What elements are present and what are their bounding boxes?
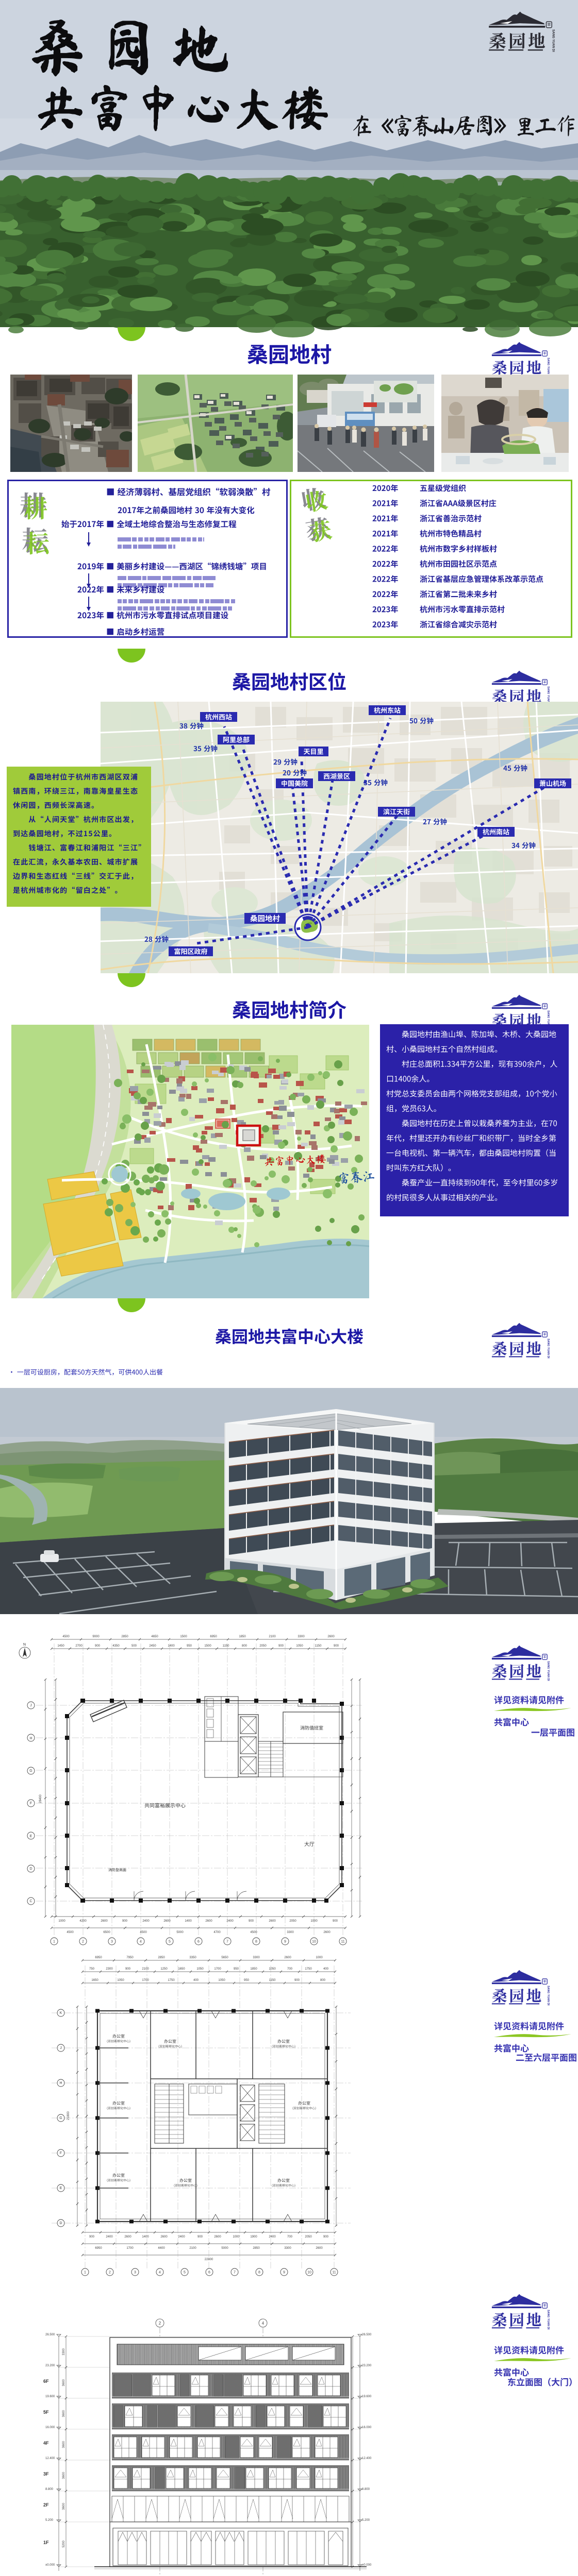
- svg-text:900: 900: [89, 2235, 95, 2239]
- svg-text:7950: 7950: [126, 1956, 134, 1959]
- svg-text:800: 800: [242, 1645, 247, 1648]
- svg-text:3600: 3600: [62, 2441, 65, 2448]
- svg-text:D: D: [59, 2222, 62, 2225]
- svg-text:500: 500: [131, 1645, 137, 1648]
- svg-text:11: 11: [332, 2271, 336, 2275]
- svg-text:1400: 1400: [142, 2235, 149, 2239]
- svg-text:2600: 2600: [269, 1920, 276, 1923]
- svg-text:10: 10: [307, 2271, 311, 2275]
- svg-text:1000: 1000: [316, 1956, 323, 1959]
- svg-text:2700: 2700: [75, 1645, 82, 1648]
- svg-text:2100: 2100: [142, 1968, 149, 1971]
- svg-text:N: N: [23, 1643, 26, 1647]
- svg-text:4500: 4500: [250, 1931, 257, 1934]
- svg-text:16.000: 16.000: [362, 2426, 372, 2429]
- svg-text:3300: 3300: [284, 2247, 291, 2250]
- svg-text:8: 8: [258, 2271, 260, 2275]
- svg-text:23.200: 23.200: [362, 2364, 372, 2367]
- svg-text:3600: 3600: [62, 2503, 65, 2510]
- svg-text:1050: 1050: [269, 1968, 276, 1971]
- svg-text:2400: 2400: [106, 2235, 113, 2239]
- svg-text:D: D: [29, 1867, 32, 1871]
- svg-text:19.600: 19.600: [45, 2395, 55, 2398]
- svg-text:3: 3: [134, 2271, 136, 2275]
- svg-text:H: H: [29, 1737, 32, 1740]
- svg-text:6: 6: [197, 1940, 200, 1944]
- svg-text:2400: 2400: [269, 2235, 276, 2239]
- svg-text:K: K: [60, 2011, 62, 2015]
- svg-text:4500: 4500: [67, 1931, 74, 1934]
- svg-text:1700: 1700: [126, 2247, 134, 2250]
- svg-text:950: 950: [187, 1645, 192, 1648]
- svg-text:6950: 6950: [210, 1635, 217, 1638]
- svg-text:J: J: [60, 2046, 62, 2050]
- svg-text:2300: 2300: [106, 1968, 113, 1971]
- svg-text:16.000: 16.000: [45, 2426, 55, 2429]
- svg-text:E: E: [60, 2187, 62, 2190]
- svg-text:2050: 2050: [305, 2235, 312, 2239]
- svg-text:2400: 2400: [226, 1920, 234, 1923]
- svg-text:400: 400: [323, 1968, 329, 1971]
- svg-text:2: 2: [82, 1940, 84, 1944]
- svg-text:4200: 4200: [79, 1920, 87, 1923]
- svg-text:5200: 5200: [62, 2540, 65, 2548]
- svg-text:5F: 5F: [43, 2410, 49, 2415]
- svg-text:5: 5: [169, 1940, 171, 1944]
- svg-text:950: 950: [244, 1979, 250, 1982]
- svg-text:1400: 1400: [168, 1645, 175, 1648]
- svg-text:3350: 3350: [189, 1956, 196, 1959]
- svg-text:2600: 2600: [327, 1635, 335, 1638]
- svg-text:3F: 3F: [43, 2471, 49, 2477]
- svg-text:5.200: 5.200: [45, 2519, 54, 2522]
- svg-text:±0.000: ±0.000: [45, 2564, 55, 2567]
- svg-text:F: F: [30, 1802, 32, 1805]
- svg-text:7: 7: [234, 2271, 236, 2275]
- svg-text:1150: 1150: [315, 1645, 322, 1648]
- svg-text:2600: 2600: [214, 2235, 221, 2239]
- svg-text:4700: 4700: [213, 1931, 221, 1934]
- svg-text:4: 4: [159, 2271, 161, 2275]
- svg-text:1700: 1700: [214, 1968, 221, 1971]
- svg-text:7: 7: [226, 1940, 228, 1944]
- svg-text:750: 750: [89, 1968, 95, 1971]
- svg-text:6950: 6950: [95, 2247, 102, 2250]
- svg-text:900: 900: [125, 1968, 131, 1971]
- svg-text:1050: 1050: [296, 1645, 303, 1648]
- svg-text:900: 900: [197, 2235, 203, 2239]
- svg-text:2400: 2400: [142, 1920, 150, 1923]
- svg-text:E: E: [30, 1835, 32, 1838]
- svg-text:2: 2: [159, 2321, 161, 2326]
- svg-text:2850: 2850: [121, 1635, 128, 1638]
- svg-text:11: 11: [341, 1940, 344, 1944]
- svg-text:6: 6: [208, 2271, 210, 2275]
- svg-text:1650: 1650: [178, 1968, 185, 1971]
- svg-text:3300: 3300: [287, 1931, 294, 1934]
- svg-text:8.800: 8.800: [45, 2488, 54, 2491]
- svg-text:C: C: [29, 1900, 32, 1903]
- svg-text:26.500: 26.500: [45, 2333, 55, 2336]
- svg-text:900: 900: [122, 1920, 128, 1923]
- svg-text:28400: 28400: [39, 1794, 42, 1803]
- svg-text:2: 2: [109, 2271, 111, 2275]
- svg-text:8.800: 8.800: [362, 2488, 370, 2491]
- svg-text:3300: 3300: [62, 2348, 65, 2355]
- svg-text:1850: 1850: [239, 1635, 246, 1638]
- svg-text:1050: 1050: [196, 1968, 204, 1971]
- svg-text:400: 400: [193, 1979, 199, 1982]
- svg-text:9: 9: [284, 1940, 286, 1944]
- svg-text:1F: 1F: [43, 2540, 49, 2545]
- svg-text:1000: 1000: [58, 1920, 65, 1923]
- svg-text:2600: 2600: [316, 2247, 323, 2250]
- svg-text:2050: 2050: [259, 1645, 267, 1648]
- svg-text:5: 5: [184, 2271, 186, 2275]
- svg-text:1500: 1500: [204, 1645, 211, 1648]
- svg-text:4500: 4500: [140, 1931, 147, 1934]
- svg-text:900: 900: [323, 2235, 329, 2239]
- svg-text:12.400: 12.400: [362, 2457, 372, 2460]
- svg-text:1050: 1050: [218, 1979, 225, 1982]
- svg-text:19.600: 19.600: [362, 2395, 372, 2398]
- svg-text:2F: 2F: [43, 2502, 49, 2507]
- svg-text:2450: 2450: [149, 1645, 156, 1648]
- svg-text:G: G: [29, 1769, 32, 1773]
- svg-text:2600: 2600: [163, 1920, 171, 1923]
- svg-text:1050: 1050: [117, 1979, 124, 1982]
- svg-text:6500: 6500: [103, 1931, 110, 1934]
- svg-text:2600: 2600: [160, 2235, 168, 2239]
- svg-text:700: 700: [287, 2235, 293, 2239]
- svg-text:950: 950: [234, 1968, 239, 1971]
- svg-text:800: 800: [320, 1979, 326, 1982]
- svg-text:9000: 9000: [92, 1635, 100, 1638]
- svg-text:H: H: [59, 2081, 62, 2085]
- svg-text:12.400: 12.400: [45, 2457, 55, 2460]
- svg-text:G: G: [59, 2116, 62, 2120]
- svg-text:3600: 3600: [62, 2379, 65, 2386]
- svg-text:2600: 2600: [284, 1956, 291, 1959]
- svg-text:1: 1: [53, 1940, 55, 1944]
- svg-text:1750: 1750: [168, 1979, 175, 1982]
- svg-text:6F: 6F: [43, 2379, 49, 2384]
- svg-text:2400: 2400: [178, 2235, 185, 2239]
- svg-text:4F: 4F: [43, 2441, 49, 2446]
- svg-text:1000: 1000: [233, 2235, 240, 2239]
- svg-text:J: J: [30, 1704, 32, 1707]
- svg-text:3300: 3300: [253, 1956, 260, 1959]
- svg-text:2600: 2600: [323, 1931, 331, 1934]
- svg-text:900: 900: [333, 1920, 338, 1923]
- svg-text:2100: 2100: [189, 2247, 196, 2250]
- svg-text:3600: 3600: [62, 2410, 65, 2417]
- svg-text:4350: 4350: [112, 1645, 120, 1648]
- svg-text:2100: 2100: [269, 1635, 276, 1638]
- svg-text:900: 900: [249, 1920, 254, 1923]
- svg-text:1900: 1900: [250, 2235, 257, 2239]
- svg-text:5650: 5650: [221, 1956, 228, 1959]
- svg-text:1500: 1500: [180, 1635, 187, 1638]
- svg-text:1: 1: [84, 2271, 86, 2275]
- svg-text:4500: 4500: [62, 1635, 70, 1638]
- svg-text:4400: 4400: [158, 2247, 165, 2250]
- svg-text:1850: 1850: [250, 1968, 257, 1971]
- svg-text:1700: 1700: [142, 1979, 149, 1982]
- svg-text:2600: 2600: [101, 1920, 108, 1923]
- svg-text:4: 4: [140, 1940, 142, 1944]
- svg-text:4: 4: [262, 2321, 265, 2326]
- svg-text:700: 700: [287, 1968, 293, 1971]
- svg-text:2600: 2600: [205, 1920, 212, 1923]
- svg-text:1150: 1150: [269, 1979, 276, 1982]
- svg-text:2850: 2850: [158, 1956, 165, 1959]
- svg-text:F: F: [60, 2151, 62, 2155]
- svg-text:3: 3: [111, 1940, 113, 1944]
- svg-text:±0.000: ±0.000: [362, 2564, 372, 2567]
- svg-text:23.200: 23.200: [45, 2364, 55, 2367]
- svg-text:1450: 1450: [57, 1645, 64, 1648]
- svg-text:1250: 1250: [160, 1968, 168, 1971]
- svg-text:2600: 2600: [124, 2235, 131, 2239]
- svg-text:900: 900: [278, 1645, 284, 1648]
- svg-text:4650: 4650: [151, 1635, 158, 1638]
- svg-text:10: 10: [312, 1940, 316, 1944]
- svg-text:6950: 6950: [95, 1956, 102, 1959]
- svg-text:1750: 1750: [305, 1968, 312, 1971]
- svg-text:900: 900: [95, 1645, 101, 1648]
- svg-text:8: 8: [255, 1940, 257, 1944]
- svg-text:1000: 1000: [310, 1920, 318, 1923]
- svg-text:1400: 1400: [185, 1920, 192, 1923]
- svg-text:1150: 1150: [223, 1645, 230, 1648]
- svg-text:2850: 2850: [253, 2247, 260, 2250]
- svg-text:900: 900: [294, 1979, 300, 1982]
- svg-text:26.500: 26.500: [362, 2333, 372, 2336]
- svg-text:22800: 22800: [205, 2258, 213, 2261]
- svg-text:9: 9: [283, 2271, 285, 2275]
- svg-text:3600: 3600: [62, 2472, 65, 2479]
- svg-text:1650: 1650: [91, 1979, 98, 1982]
- svg-text:2050: 2050: [289, 1920, 296, 1923]
- svg-text:5000: 5000: [176, 1931, 184, 1934]
- svg-text:21800: 21800: [67, 2111, 70, 2120]
- svg-text:5.200: 5.200: [362, 2519, 370, 2522]
- svg-text:900: 900: [334, 1645, 339, 1648]
- svg-text:5000: 5000: [221, 2247, 228, 2250]
- svg-text:3300: 3300: [298, 1635, 305, 1638]
